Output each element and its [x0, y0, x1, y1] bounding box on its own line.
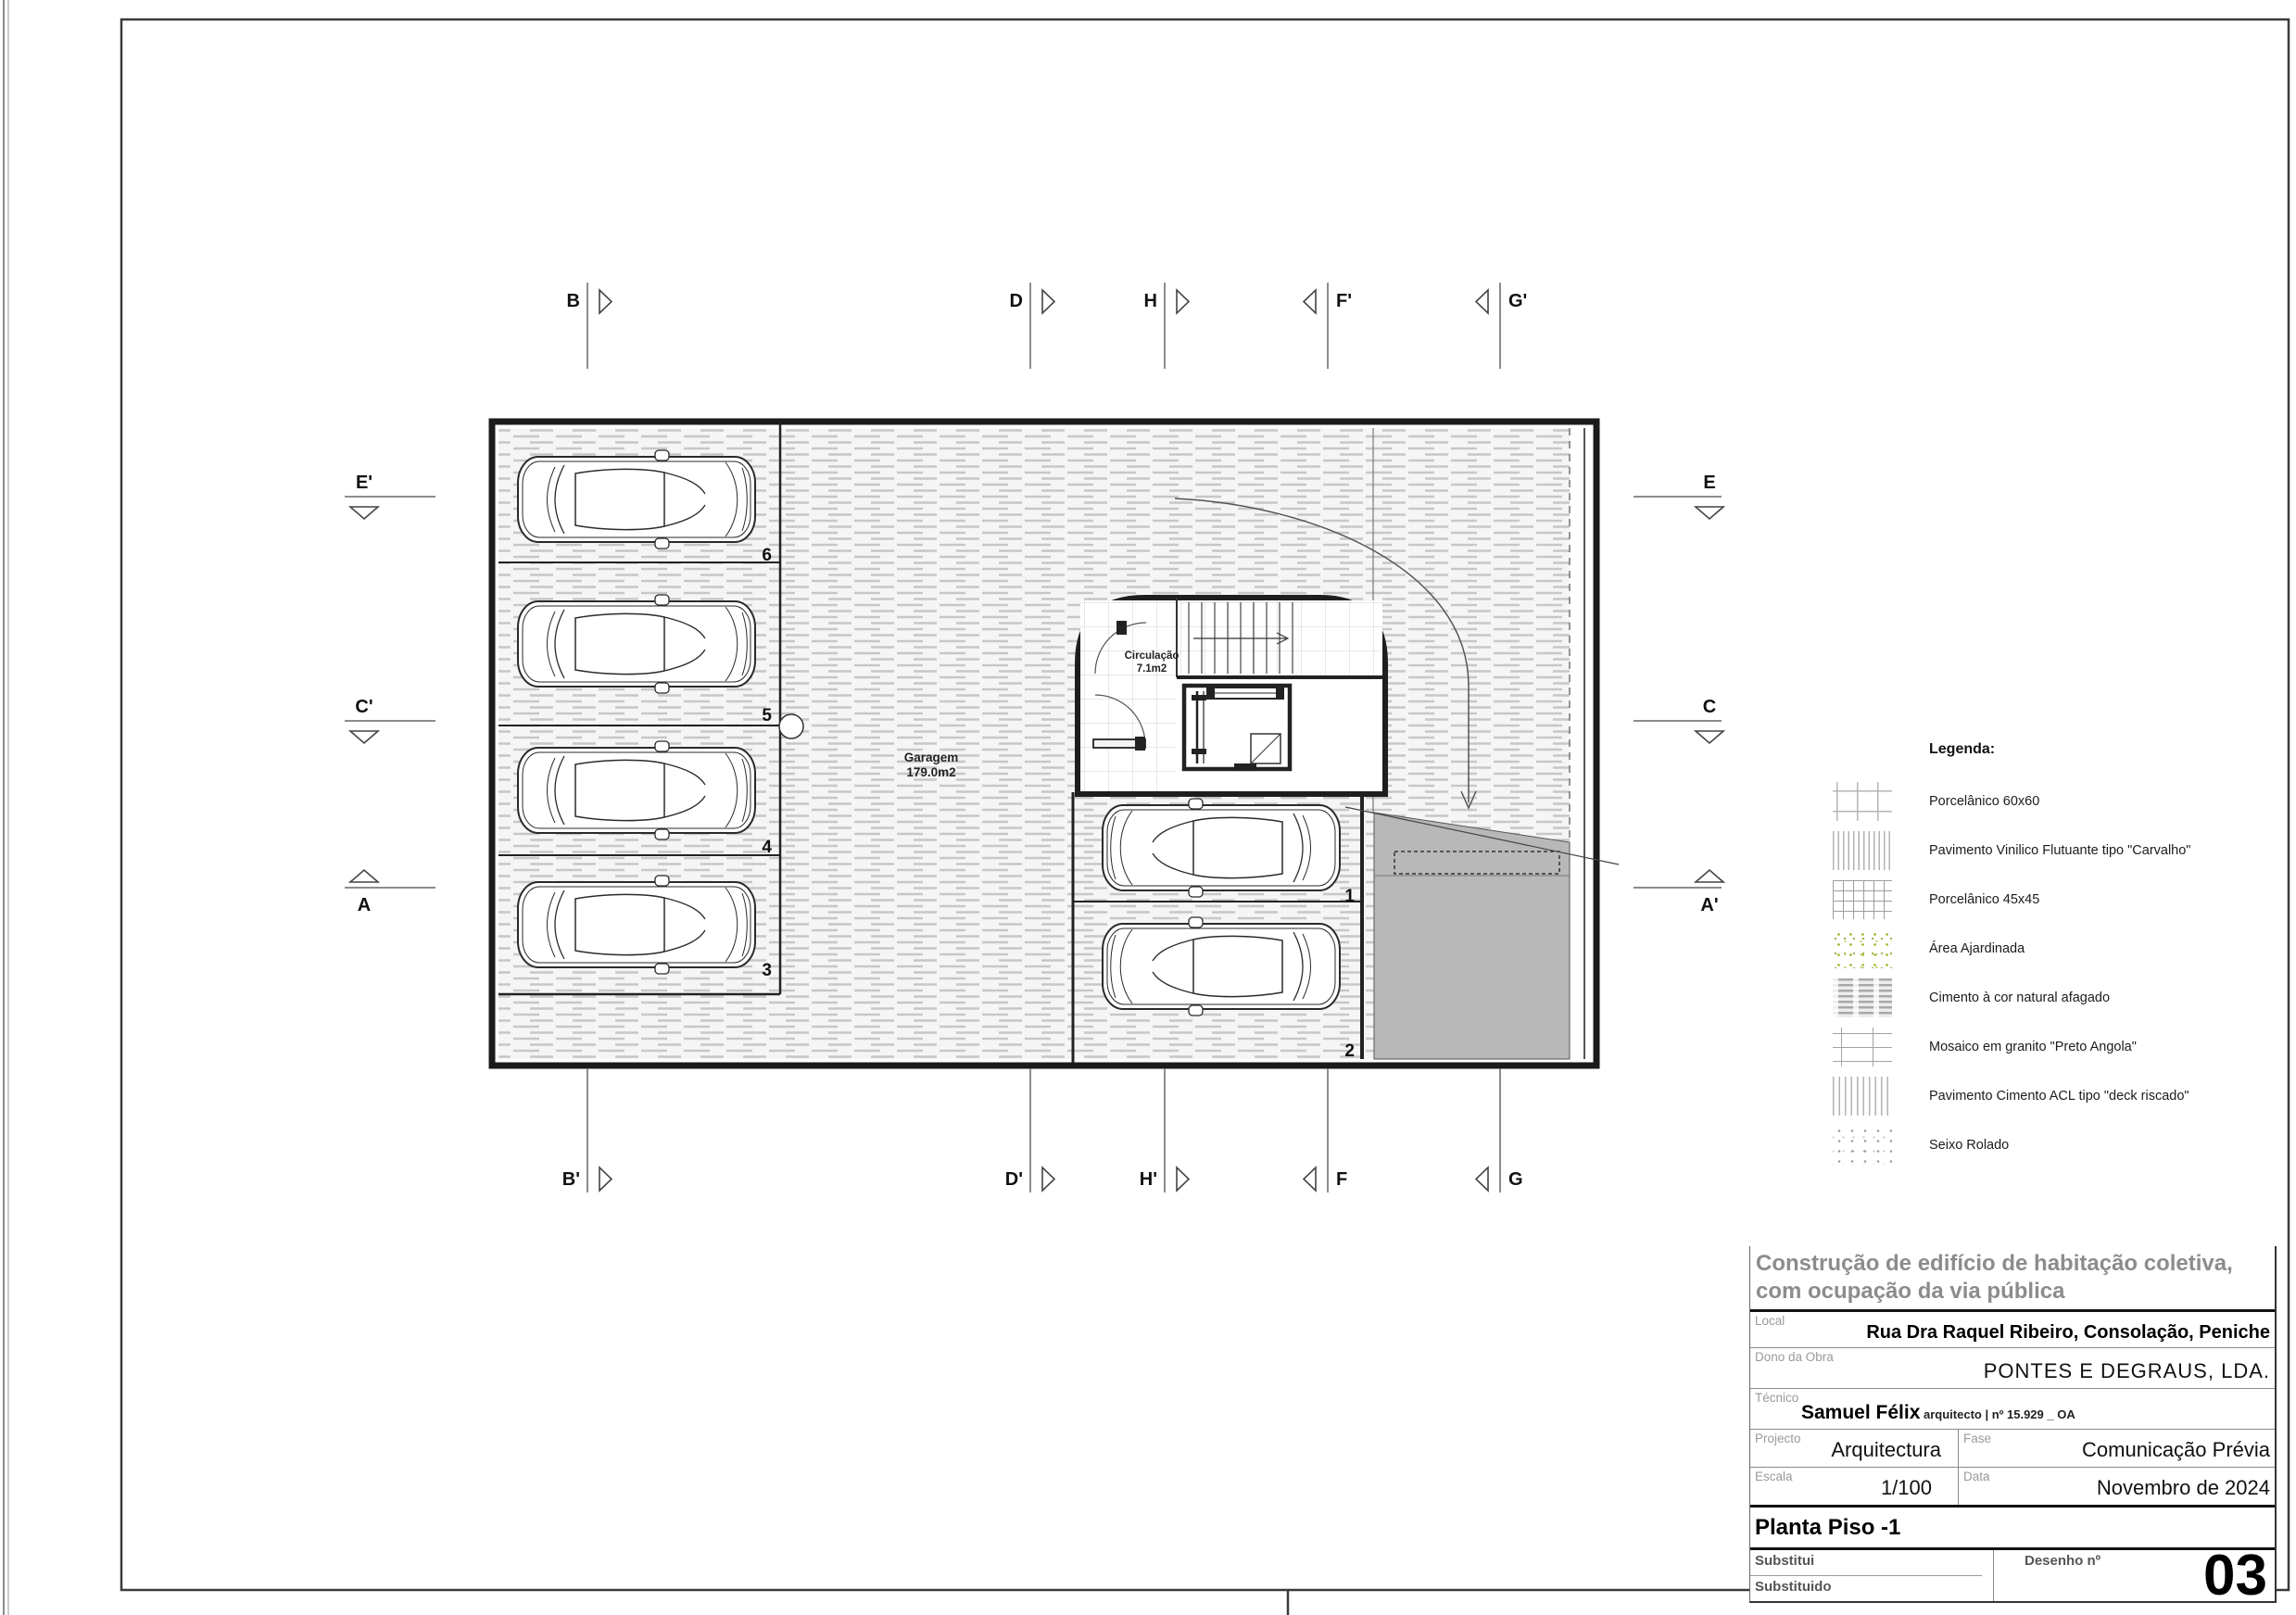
ramp-area [1374, 813, 1570, 1059]
legend-item: Cimento à cor natural afagado [1833, 978, 2296, 1017]
car-top-view [518, 595, 755, 693]
legend-item-label: Porcelânico 45x45 [1929, 892, 2039, 907]
drawing-number-cell: Desenho nº 03 [1993, 1550, 2275, 1601]
project-label: Projecto [1755, 1432, 1801, 1445]
drawing-no-label: Desenho nº [2025, 1553, 2100, 1569]
section-marker-d-prime: D' [1005, 1169, 1023, 1190]
circulation-core: Circulação 7.1m2 [1078, 598, 1385, 794]
legend-item: Área Ajardinada [1833, 929, 2296, 968]
title-block-row-technician: Técnico Samuel Félix arquitecto | nº 15.… [1750, 1388, 2275, 1429]
title-block-row-scale-date: Escala 1/100 Data Novembro de 2024 [1750, 1467, 2275, 1505]
section-marker-f-prime: F' [1336, 291, 1352, 311]
project-title-line1: Construção de edifício de habitação cole… [1756, 1250, 2275, 1278]
vinyl-plank-pattern-icon [1833, 831, 1892, 870]
owner-label: Dono da Obra [1755, 1350, 1834, 1364]
title-block-row-bottom: Substitui Substituido Desenho nº 03 [1750, 1547, 2275, 1601]
drawing-sheet: 6 5 4 3 Garagem 179.0m2 1 2 [0, 0, 2296, 1615]
legend-item-label: Seixo Rolado [1929, 1138, 2009, 1153]
section-marker-d: D [1010, 291, 1023, 311]
parking-space-number: 6 [762, 546, 772, 565]
smoothed-cement-pattern-icon [1833, 978, 1892, 1017]
project-title: Construção de edifício de habitação cole… [1750, 1246, 2275, 1309]
legend-item-label: Cimento à cor natural afagado [1929, 990, 2110, 1005]
legend-item: Seixo Rolado [1833, 1126, 2296, 1165]
section-marker-f: F [1336, 1169, 1347, 1190]
legend-item-label: Área Ajardinada [1929, 941, 2025, 956]
replaced-label: Substituido [1755, 1579, 1832, 1595]
car-top-view [518, 876, 755, 974]
parking-space-number: 4 [762, 838, 772, 857]
title-block-row-owner: Dono da Obra PONTES E DEGRAUS, LDA. [1750, 1347, 2275, 1388]
scale-value: 1/100 [1881, 1476, 1932, 1500]
local-value: Rua Dra Raquel Ribeiro, Consolação, Peni… [1866, 1322, 2270, 1344]
phase-label: Fase [1963, 1432, 1991, 1445]
owner-value: PONTES E DEGRAUS, LDA. [1984, 1359, 2270, 1383]
sheet-title: Planta Piso -1 [1755, 1515, 1900, 1541]
technician-label: Técnico [1755, 1391, 1798, 1405]
section-marker-b: B [567, 291, 580, 311]
scale-label: Escala [1755, 1470, 1793, 1483]
section-marker-g-prime: G' [1508, 291, 1527, 311]
porcelanico-45x45-pattern-icon [1833, 880, 1892, 919]
replaces-divider-line [1750, 1575, 1982, 1576]
date-value: Novembro de 2024 [2097, 1476, 2270, 1500]
car-top-view [1103, 917, 1340, 1016]
phase-value: Comunicação Prévia [2082, 1438, 2270, 1462]
title-block-row-local: Local Rua Dra Raquel Ribeiro, Consolação… [1750, 1309, 2275, 1347]
garden-area-pattern-icon [1833, 929, 1892, 968]
car-top-view [1103, 799, 1340, 897]
circulation-label: Circulação [1125, 650, 1180, 662]
section-marker-g: G [1508, 1169, 1523, 1190]
legend-item-label: Porcelânico 60x60 [1929, 794, 2039, 809]
title-block-row-sheet-title: Planta Piso -1 [1750, 1505, 2275, 1547]
section-marker-a: A [358, 895, 371, 915]
circulation-floor-tiles [1080, 600, 1175, 791]
technician-value: Samuel Félix arquitecto | nº 15.929 _ OA [1801, 1402, 2075, 1424]
legend-item: Porcelânico 45x45 [1833, 880, 2296, 919]
garage-label: Garagem [904, 751, 959, 764]
date-cell: Data Novembro de 2024 [1958, 1468, 2275, 1505]
section-marker-e-prime: E' [356, 473, 372, 493]
parking-space-number: 1 [1344, 887, 1355, 906]
car-top-view [518, 450, 755, 549]
parking-space-number: 5 [762, 706, 772, 725]
technician-credentials: arquitecto | nº 15.929 _ OA [1920, 1407, 2075, 1421]
acl-cement-deck-pattern-icon [1833, 1077, 1892, 1116]
section-marker-h: H [1144, 291, 1157, 311]
granite-mosaic-pattern-icon [1833, 1028, 1892, 1066]
title-block: Construção de edifício de habitação cole… [1749, 1246, 2277, 1603]
garage-area-value: 179.0m2 [906, 765, 955, 779]
section-marker-h-prime: H' [1140, 1169, 1157, 1190]
scale-cell: Escala 1/100 [1750, 1468, 1958, 1505]
replaces-label: Substitui [1755, 1553, 1814, 1569]
legend-item-label: Mosaico em granito "Preto Angola" [1929, 1040, 2137, 1054]
local-label: Local [1755, 1314, 1785, 1328]
phase-cell: Fase Comunicação Prévia [1958, 1430, 2275, 1467]
section-marker-c: C [1703, 697, 1716, 717]
legend-item: Pavimento Vinilico Flutuante tipo "Carva… [1833, 831, 2296, 870]
legend-item: Pavimento Cimento ACL tipo "deck riscado… [1833, 1077, 2296, 1116]
section-marker-a-prime: A' [1700, 895, 1718, 915]
drawing-no-value: 03 [2203, 1549, 2267, 1604]
legend-title: Legenda: [1929, 741, 2296, 758]
project-cell: Projecto Arquitectura [1750, 1430, 1958, 1467]
legend-item-label: Pavimento Vinilico Flutuante tipo "Carva… [1929, 843, 2190, 858]
porcelanico-60x60-pattern-icon [1833, 782, 1892, 821]
substitui-cell: Substitui Substituido [1750, 1550, 1993, 1601]
section-marker-e: E [1703, 473, 1715, 493]
stair-floor-tiles [1175, 600, 1382, 675]
circulation-area-value: 7.1m2 [1137, 663, 1167, 675]
structural-column [779, 714, 803, 738]
date-label: Data [1963, 1470, 1990, 1483]
legend-item: Mosaico em granito "Preto Angola" [1833, 1028, 2296, 1066]
project-value: Arquitectura [1831, 1438, 1941, 1462]
section-marker-c-prime: C' [355, 697, 372, 717]
parking-space-number: 2 [1344, 1041, 1355, 1061]
section-marker-b-prime: B' [562, 1169, 580, 1190]
parking-space-number: 3 [762, 961, 772, 980]
garage-plan: 6 5 4 3 Garagem 179.0m2 1 2 [492, 422, 1619, 1066]
project-title-line2: com ocupação da via pública [1756, 1278, 2275, 1306]
technician-name: Samuel Félix [1801, 1402, 1920, 1423]
title-block-row-project-phase: Projecto Arquitectura Fase Comunicação P… [1750, 1429, 2275, 1467]
rolled-pebble-pattern-icon [1833, 1126, 1892, 1165]
legend-item-label: Pavimento Cimento ACL tipo "deck riscado… [1929, 1089, 2189, 1104]
elevator [1184, 686, 1290, 770]
car-top-view [518, 741, 755, 839]
legend-item: Porcelânico 60x60 [1833, 782, 2296, 821]
legend: Legenda: Porcelânico 60x60 Pavimento Vin… [1833, 741, 2296, 1175]
